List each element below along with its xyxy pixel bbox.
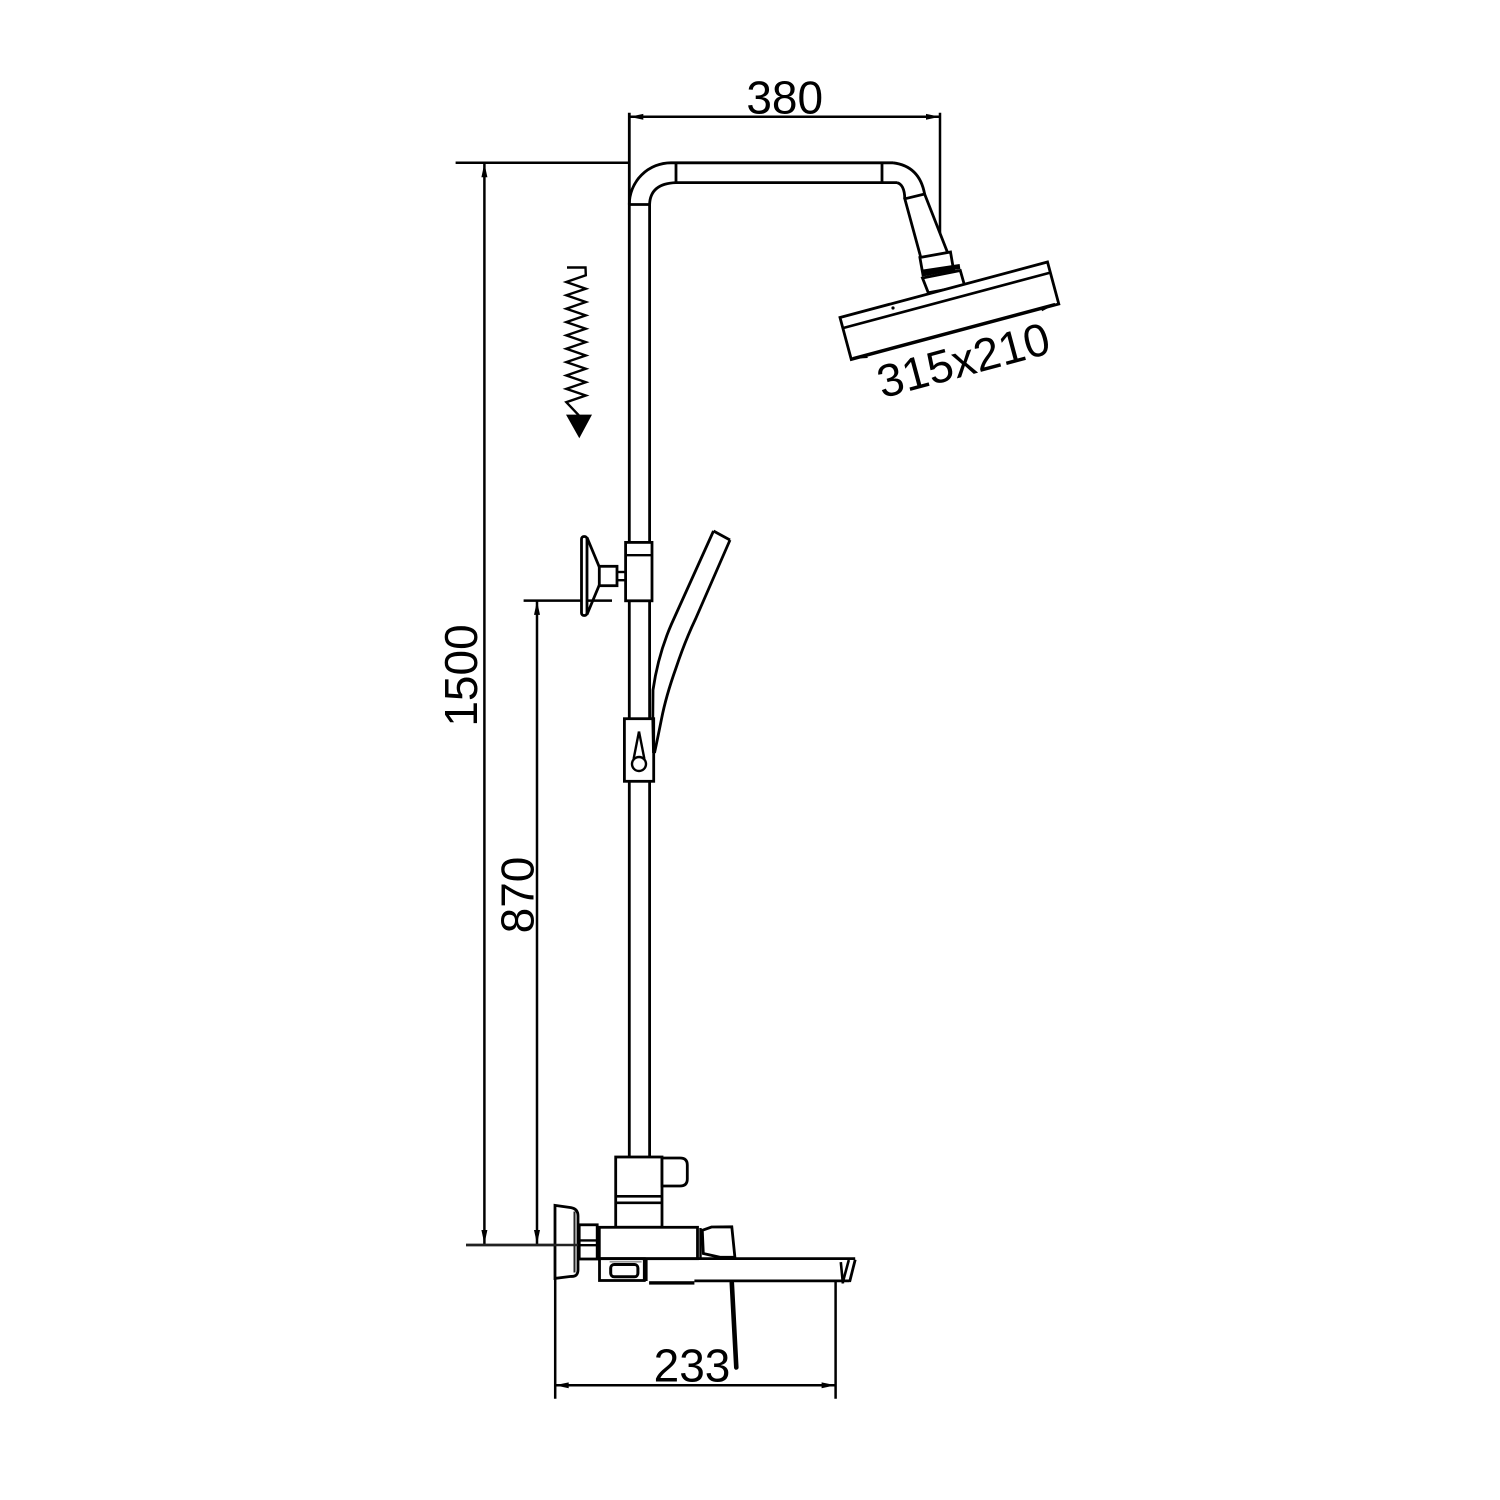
svg-text:870: 870 — [492, 857, 544, 934]
svg-text:1500: 1500 — [435, 624, 487, 726]
svg-text:380: 380 — [746, 71, 823, 123]
svg-text:233: 233 — [654, 1339, 731, 1391]
